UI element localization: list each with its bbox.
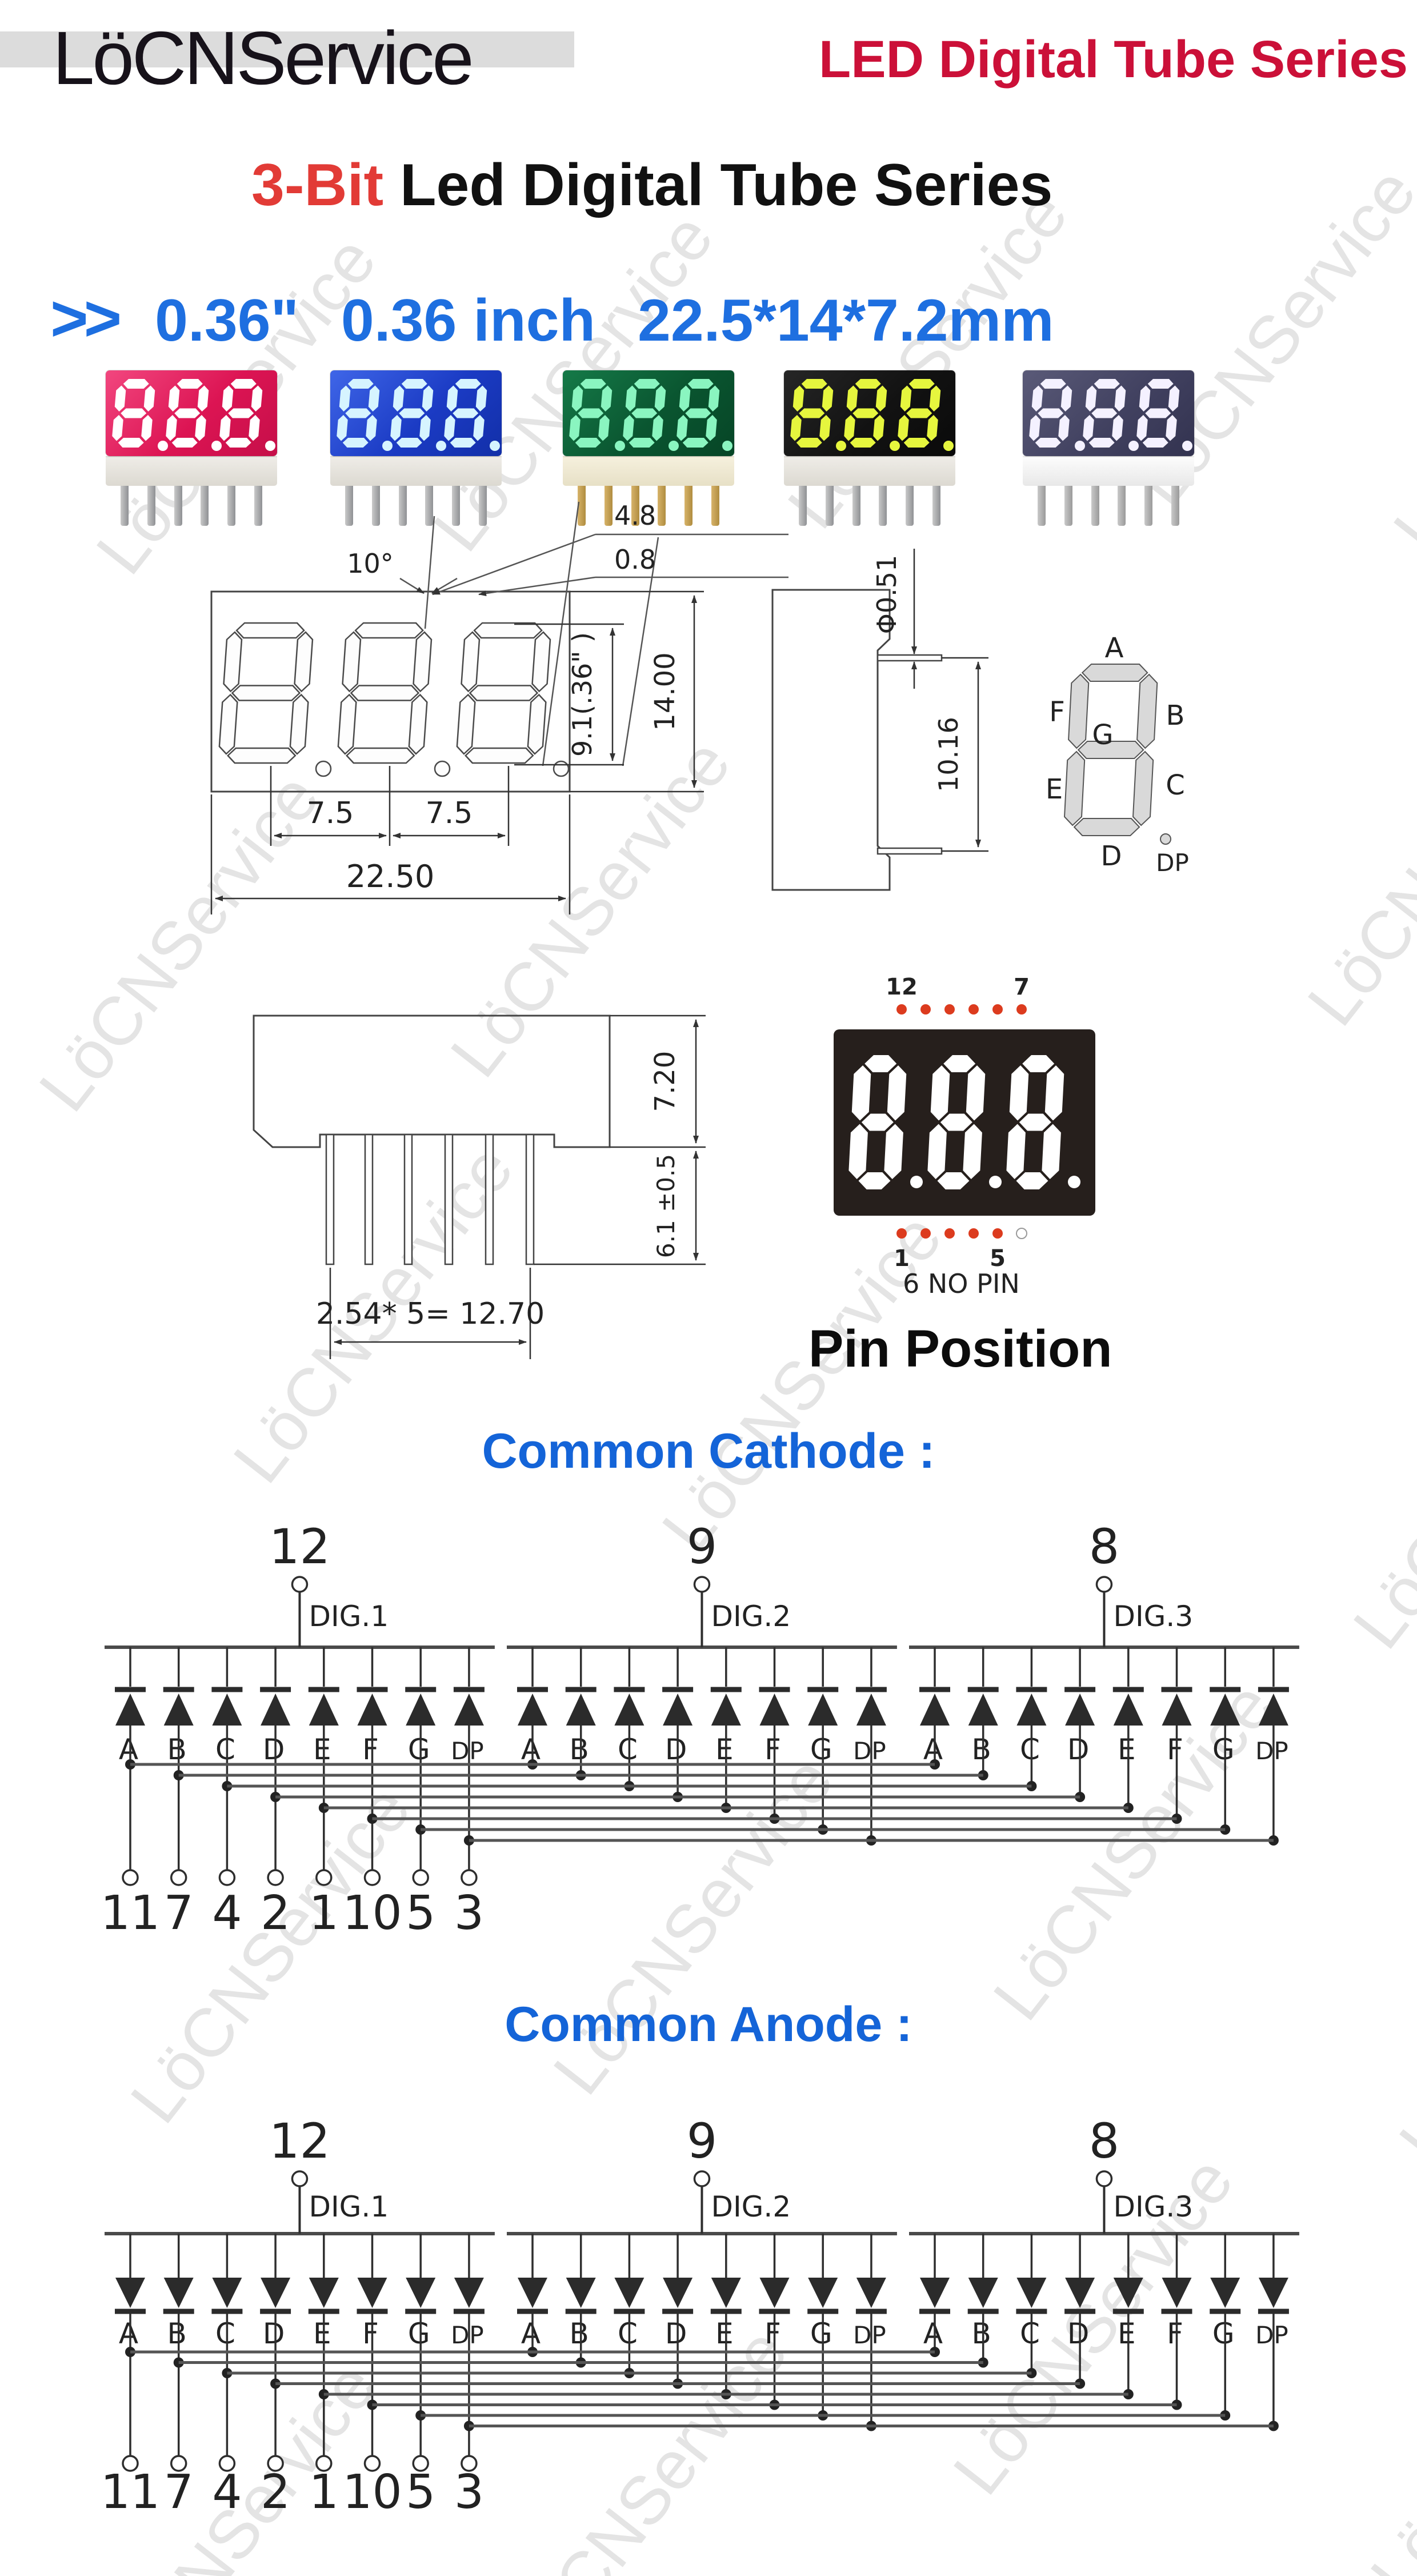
common-anode-schematic: 12DIG.1A11B7C4D2E1F10G5DP39DIG.2ABCDEFGD…: [0, 2086, 1417, 2543]
diode-symbol: [711, 1694, 741, 1726]
display-face: [106, 370, 277, 456]
digit-pin-terminal: [694, 1577, 709, 1592]
bottom-pin-number: 2: [261, 2465, 290, 2519]
display-base: [106, 456, 277, 486]
common-anode-heading: Common Anode :: [0, 1996, 1417, 2053]
diode-symbol: [968, 1694, 998, 1726]
bottom-pin-number: 5: [406, 1886, 435, 1940]
product-infographic-page: LöCNServiceLöCNServiceLöCNServiceLöCNSer…: [0, 0, 1417, 2576]
diode-symbol: [1114, 2278, 1143, 2308]
display-face: [1023, 370, 1194, 456]
dim-total-width: 22.50: [346, 858, 435, 894]
segment-label: C: [215, 2317, 235, 2350]
diode-symbol: [309, 1694, 339, 1726]
seven-segment-digit: [443, 379, 488, 448]
bottom-pin-number: 11: [101, 2465, 160, 2519]
spec-size-inch: 0.36 inch: [341, 287, 595, 355]
seven-segment-digit: [1028, 379, 1073, 448]
segment-label: B: [570, 2317, 589, 2350]
decimal-point: [158, 441, 168, 451]
diode-symbol: [212, 1694, 242, 1726]
diode-symbol: [1016, 2278, 1046, 2308]
display-face: [563, 370, 734, 456]
top-pin-dot: [968, 1004, 979, 1015]
segment-label: G: [408, 1733, 430, 1766]
digit-label: DIG.2: [711, 1600, 791, 1633]
bottom-pin-terminal: [413, 1870, 428, 1885]
diode-symbol: [711, 2278, 741, 2308]
top-pin-dot: [920, 1004, 931, 1015]
common-cathode-heading: Common Cathode :: [0, 1423, 1417, 1480]
decimal-point: [890, 441, 900, 451]
segment-label: B: [167, 1733, 187, 1766]
dim-angle: 10°: [347, 548, 394, 579]
segment-label: E: [1118, 2317, 1136, 2350]
seven-segment-digit: [111, 379, 156, 448]
diode-symbol: [309, 2278, 339, 2308]
bottom-pin-number: 1: [309, 2465, 339, 2519]
decimal-point: [722, 441, 732, 451]
diode-symbol: [1016, 1694, 1046, 1726]
front-view-dp-1: [316, 761, 331, 776]
bottom-pin-number: 3: [454, 2465, 484, 2519]
digit-pin-number: 8: [1089, 2113, 1119, 2169]
segment-label: DP: [853, 1737, 886, 1765]
segment-label-b: B: [1166, 700, 1185, 732]
common-cathode-schematic: 12DIG.1A11B7C4D2E1F10G5DP39DIG.2ABCDEFGD…: [0, 1486, 1417, 1972]
digit-pin-terminal: [1096, 1577, 1111, 1592]
side-view-bottom-pin: [878, 848, 942, 854]
decimal-point: [436, 441, 446, 451]
segment-label: D: [1067, 2317, 1090, 2350]
bottom-pin-terminal: [365, 1870, 380, 1885]
segment-label: G: [810, 2317, 832, 2350]
front-view-drawing: 10° 4.8 0.8 9.1(.36" ) 14.00 7.5 7.5 22.…: [0, 492, 1417, 949]
display-base: [330, 456, 502, 486]
digit-label: DIG.3: [1113, 1600, 1193, 1633]
seven-segment-digit: [843, 379, 888, 448]
bottom-pin-dot: [944, 1228, 955, 1239]
segment-label: F: [362, 1733, 379, 1766]
bottom-pin-dot: [920, 1228, 931, 1239]
digit-label: DIG.1: [309, 2190, 389, 2223]
diode-symbol: [1162, 2278, 1192, 2308]
diode-symbol: [1259, 2278, 1288, 2308]
decimal-point: [382, 441, 393, 451]
seven-segment-digit: [390, 379, 434, 448]
diode-symbol: [663, 1694, 693, 1726]
segment-label: D: [263, 2317, 285, 2350]
display-base: [563, 456, 734, 486]
decimal-point: [265, 441, 275, 451]
segment-label: C: [215, 1733, 235, 1766]
segment-label: F: [764, 1733, 781, 1766]
diode-symbol: [856, 1694, 886, 1726]
bottom-pin-dot: [1016, 1228, 1027, 1239]
segment-label-d: D: [1101, 840, 1122, 872]
segment-label-e: E: [1046, 773, 1063, 805]
segment-label: B: [972, 1733, 991, 1766]
segment-label: D: [263, 1733, 285, 1766]
segment-label: B: [570, 1733, 589, 1766]
bottom-pin-number: 11: [101, 1886, 160, 1940]
segment-label: DP: [853, 2321, 886, 2349]
bottom-pin-number: 7: [164, 1886, 194, 1940]
segment-label: DP: [451, 2321, 484, 2349]
decimal-point: [1182, 441, 1192, 451]
side-view-top-pin: [878, 655, 942, 661]
bottom-pin-number: 4: [212, 2465, 242, 2519]
seven-segment-digit: [790, 379, 834, 448]
bottom-pin-terminal: [171, 1870, 186, 1885]
decimal-point: [943, 441, 954, 451]
chevrons-icon: >>: [50, 281, 117, 356]
diode-symbol: [566, 1694, 596, 1726]
bottom-pin-terminal: [219, 1870, 234, 1885]
bottom-pin-terminal: [462, 1870, 477, 1885]
bottom-pin-dot: [968, 1228, 979, 1239]
segment-label: A: [521, 2317, 541, 2350]
bottom-pin-number: 4: [212, 1886, 242, 1940]
bottom-pin-dot: [992, 1228, 1003, 1239]
display-base: [784, 456, 955, 486]
seven-segment-digit: [1136, 379, 1180, 448]
pin-position-heading: Pin Position: [808, 1319, 1112, 1379]
segment-label: C: [1020, 1733, 1040, 1766]
dim-pin-diameter: Φ0.51: [871, 555, 902, 634]
diode-symbol: [115, 2278, 145, 2308]
diode-symbol: [1210, 1694, 1240, 1726]
bottom-pin-terminal: [317, 1870, 331, 1885]
digit-pin-number: 9: [687, 1519, 717, 1575]
segment-label: F: [1167, 1733, 1183, 1766]
seven-segment-digit: [569, 379, 613, 448]
dim-digit-height: 9.1(.36" ): [567, 632, 598, 757]
bottom-pin-dot: [896, 1228, 907, 1239]
segment-label: F: [1167, 2317, 1183, 2350]
seven-segment-digit: [219, 379, 263, 448]
diode-symbol: [614, 2278, 644, 2308]
diode-symbol: [920, 2278, 950, 2308]
bottom-pin-number: 7: [164, 2465, 194, 2519]
segment-label: B: [972, 2317, 991, 2350]
seven-segment-digit: [336, 379, 381, 448]
side-view-outline: [772, 590, 890, 890]
segment-label: A: [119, 2317, 138, 2350]
bottom-pin-terminal: [268, 1870, 283, 1885]
front-view-dp-3: [554, 761, 569, 776]
bottom-pin-number: 10: [342, 2465, 402, 2519]
segment-label: D: [1067, 1733, 1090, 1766]
digit-pin-number: 12: [269, 2113, 330, 2169]
diode-symbol: [115, 1694, 145, 1726]
diode-symbol: [518, 1694, 547, 1726]
diode-symbol: [808, 1694, 838, 1726]
segment-label-a: A: [1105, 632, 1124, 664]
dim-total-height: 14.00: [649, 652, 681, 730]
dim-pin-pitch: 2.54* 5= 12.70: [316, 1297, 545, 1331]
diode-symbol: [760, 2278, 790, 2308]
diode-symbol: [518, 2278, 547, 2308]
diode-symbol: [566, 2278, 596, 2308]
dim-pitch-right: 7.5: [426, 796, 473, 830]
decimal-point: [836, 441, 846, 451]
display-face: [784, 370, 955, 456]
side-pin-pins: [326, 1135, 534, 1264]
segment-label: C: [618, 1733, 638, 1766]
seven-segment-digit: [218, 623, 314, 763]
diode-symbol: [1065, 1694, 1095, 1726]
digit-label: DIG.2: [711, 2190, 791, 2223]
segment-label: DP: [1255, 1737, 1288, 1765]
segment-label: DP: [1255, 2321, 1288, 2349]
side-pin-body-outline: [254, 1016, 610, 1147]
top-pin-dot: [944, 1004, 955, 1015]
pin-label-12: 12: [886, 974, 918, 1000]
pin-label-7: 7: [1014, 974, 1030, 1000]
front-view-dp-2: [435, 761, 450, 776]
diode-symbol: [663, 2278, 693, 2308]
diode-symbol: [920, 1694, 950, 1726]
digit-pin-number: 9: [687, 2113, 717, 2169]
segment-label-c: C: [1166, 769, 1185, 801]
size-specs-row: >> 0.36" 0.36 inch 22.5*14*7.2mm: [50, 281, 1096, 356]
diode-symbol: [358, 1694, 387, 1726]
brand-logo: LöCNService: [53, 21, 472, 96]
dim-pin-span: 10.16: [933, 717, 964, 792]
segment-label: E: [715, 1733, 734, 1766]
bottom-pin-number: 3: [454, 1886, 484, 1940]
diode-symbol: [212, 2278, 242, 2308]
top-pin-dot: [1016, 1004, 1027, 1015]
spec-size-quote: 0.36": [155, 287, 299, 355]
no-pin-note: 6 NO PIN: [903, 1268, 1020, 1299]
digit-pin-terminal: [292, 2171, 307, 2186]
diode-symbol: [808, 2278, 838, 2308]
top-pin-dot: [896, 1004, 907, 1015]
decimal-point: [669, 441, 679, 451]
diode-symbol: [261, 2278, 290, 2308]
decimal-point: [490, 441, 500, 451]
dim-pitch-left: 7.5: [307, 796, 354, 830]
top-pin-dot: [992, 1004, 1003, 1015]
segment-label: G: [408, 2317, 430, 2350]
diode-symbol: [164, 2278, 194, 2308]
segment-label-g: G: [1092, 719, 1113, 751]
seven-segment-digit: [897, 379, 942, 448]
seven-segment-digit: [337, 623, 433, 763]
diode-symbol: [1162, 1694, 1192, 1726]
segment-label: F: [764, 2317, 781, 2350]
bottom-pin-number: 5: [406, 2465, 435, 2519]
display-face: [330, 370, 502, 456]
dim-seg-gap: 0.8: [614, 544, 656, 575]
segment-label: E: [1118, 1733, 1136, 1766]
diode-symbol: [358, 2278, 387, 2308]
diode-symbol: [406, 2278, 435, 2308]
seven-segment-digit: [622, 379, 667, 448]
digit-pin-terminal: [1096, 2171, 1111, 2186]
seven-segment-digit: [165, 379, 210, 448]
diode-symbol: [454, 1694, 484, 1726]
segment-label: G: [1212, 1733, 1235, 1766]
diode-symbol: [856, 2278, 886, 2308]
segment-label: D: [665, 1733, 687, 1766]
decimal-point: [211, 441, 222, 451]
bottom-pin-number: 10: [342, 1886, 402, 1940]
diode-symbol: [968, 2278, 998, 2308]
dim-body-height: 7.20: [649, 1051, 681, 1112]
bottom-pin-number: 1: [309, 1886, 339, 1940]
diode-symbol: [261, 1694, 290, 1726]
segment-label: G: [1212, 2317, 1235, 2350]
product-title-rest: Led Digital Tube Series: [383, 152, 1052, 218]
digit-label: DIG.1: [309, 1600, 389, 1633]
segment-diagram-dp-dot: [1160, 834, 1171, 844]
bottom-pin-terminal: [123, 1870, 138, 1885]
digit-pin-number: 8: [1089, 1519, 1119, 1575]
diode-symbol: [1210, 2278, 1240, 2308]
display-base: [1023, 456, 1194, 486]
header-title: LED Digital Tube Series: [819, 33, 1408, 86]
decimal-point: [1128, 441, 1139, 451]
side-pin-view-drawing: 7.20 6.1 ±0.5 2.54* 5= 12.70 12 7 1 5 6 …: [0, 943, 1417, 1377]
segment-label: A: [923, 2317, 943, 2350]
diode-symbol: [1259, 1694, 1288, 1726]
segment-label: F: [362, 2317, 379, 2350]
segment-label: C: [1020, 2317, 1040, 2350]
diode-symbol: [406, 1694, 435, 1726]
segment-label: C: [618, 2317, 638, 2350]
dim-pin-length: 6.1 ±0.5: [652, 1154, 680, 1258]
product-title-highlight: 3-Bit: [251, 152, 383, 218]
spec-dimensions: 22.5*14*7.2mm: [638, 287, 1054, 355]
seven-segment-digit: [1082, 379, 1127, 448]
product-title: 3-Bit Led Digital Tube Series: [251, 155, 1052, 215]
seven-segment-digit: [676, 379, 720, 448]
diode-symbol: [454, 2278, 484, 2308]
bottom-pin-number: 2: [261, 1886, 290, 1940]
diode-symbol: [760, 1694, 790, 1726]
front-view-digits: [218, 623, 551, 763]
digit-pin-terminal: [292, 1577, 307, 1592]
segment-label-f: F: [1049, 696, 1065, 728]
digit-pin-terminal: [694, 2171, 709, 2186]
decimal-point: [1075, 441, 1085, 451]
seven-segment-digit: [456, 623, 551, 763]
digit-label: DIG.3: [1113, 2190, 1193, 2223]
segment-label: D: [665, 2317, 687, 2350]
segment-label: E: [715, 2317, 734, 2350]
segment-label: DP: [451, 1737, 484, 1765]
diode-symbol: [164, 1694, 194, 1726]
segment-label-dp: DP: [1156, 849, 1189, 877]
dim-seg-width: 4.8: [614, 500, 656, 531]
decimal-point: [615, 441, 625, 451]
digit-pin-number: 12: [269, 1519, 330, 1575]
diode-symbol: [1065, 2278, 1095, 2308]
diode-symbol: [1114, 1694, 1143, 1726]
segment-label: E: [313, 2317, 331, 2350]
segment-label: E: [313, 1733, 331, 1766]
segment-label: B: [167, 2317, 187, 2350]
segment-label: G: [810, 1733, 832, 1766]
diode-symbol: [614, 1694, 644, 1726]
